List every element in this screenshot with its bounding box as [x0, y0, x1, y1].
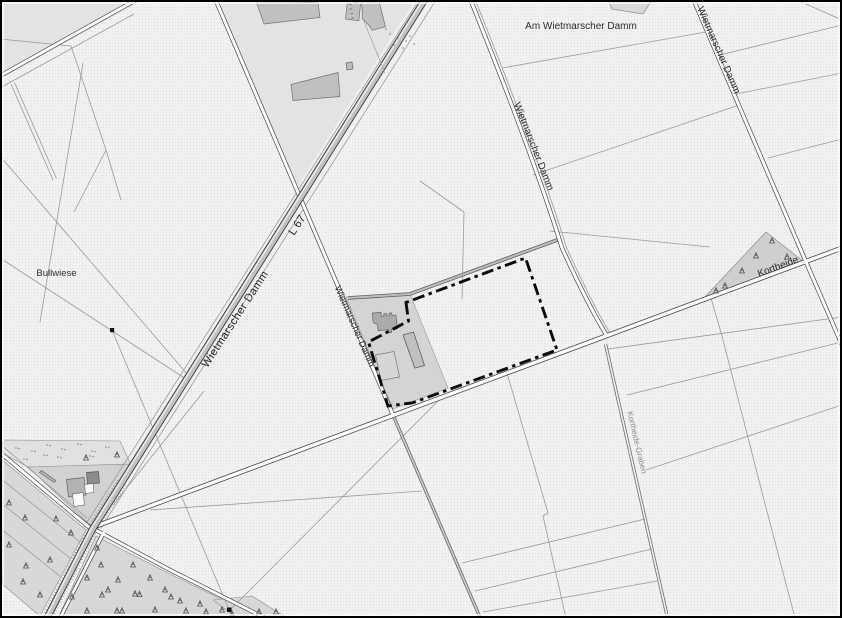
svg-text:Bullwiese: Bullwiese — [36, 268, 76, 279]
svg-text:Am Wietmarscher Damm: Am Wietmarscher Damm — [525, 21, 637, 32]
